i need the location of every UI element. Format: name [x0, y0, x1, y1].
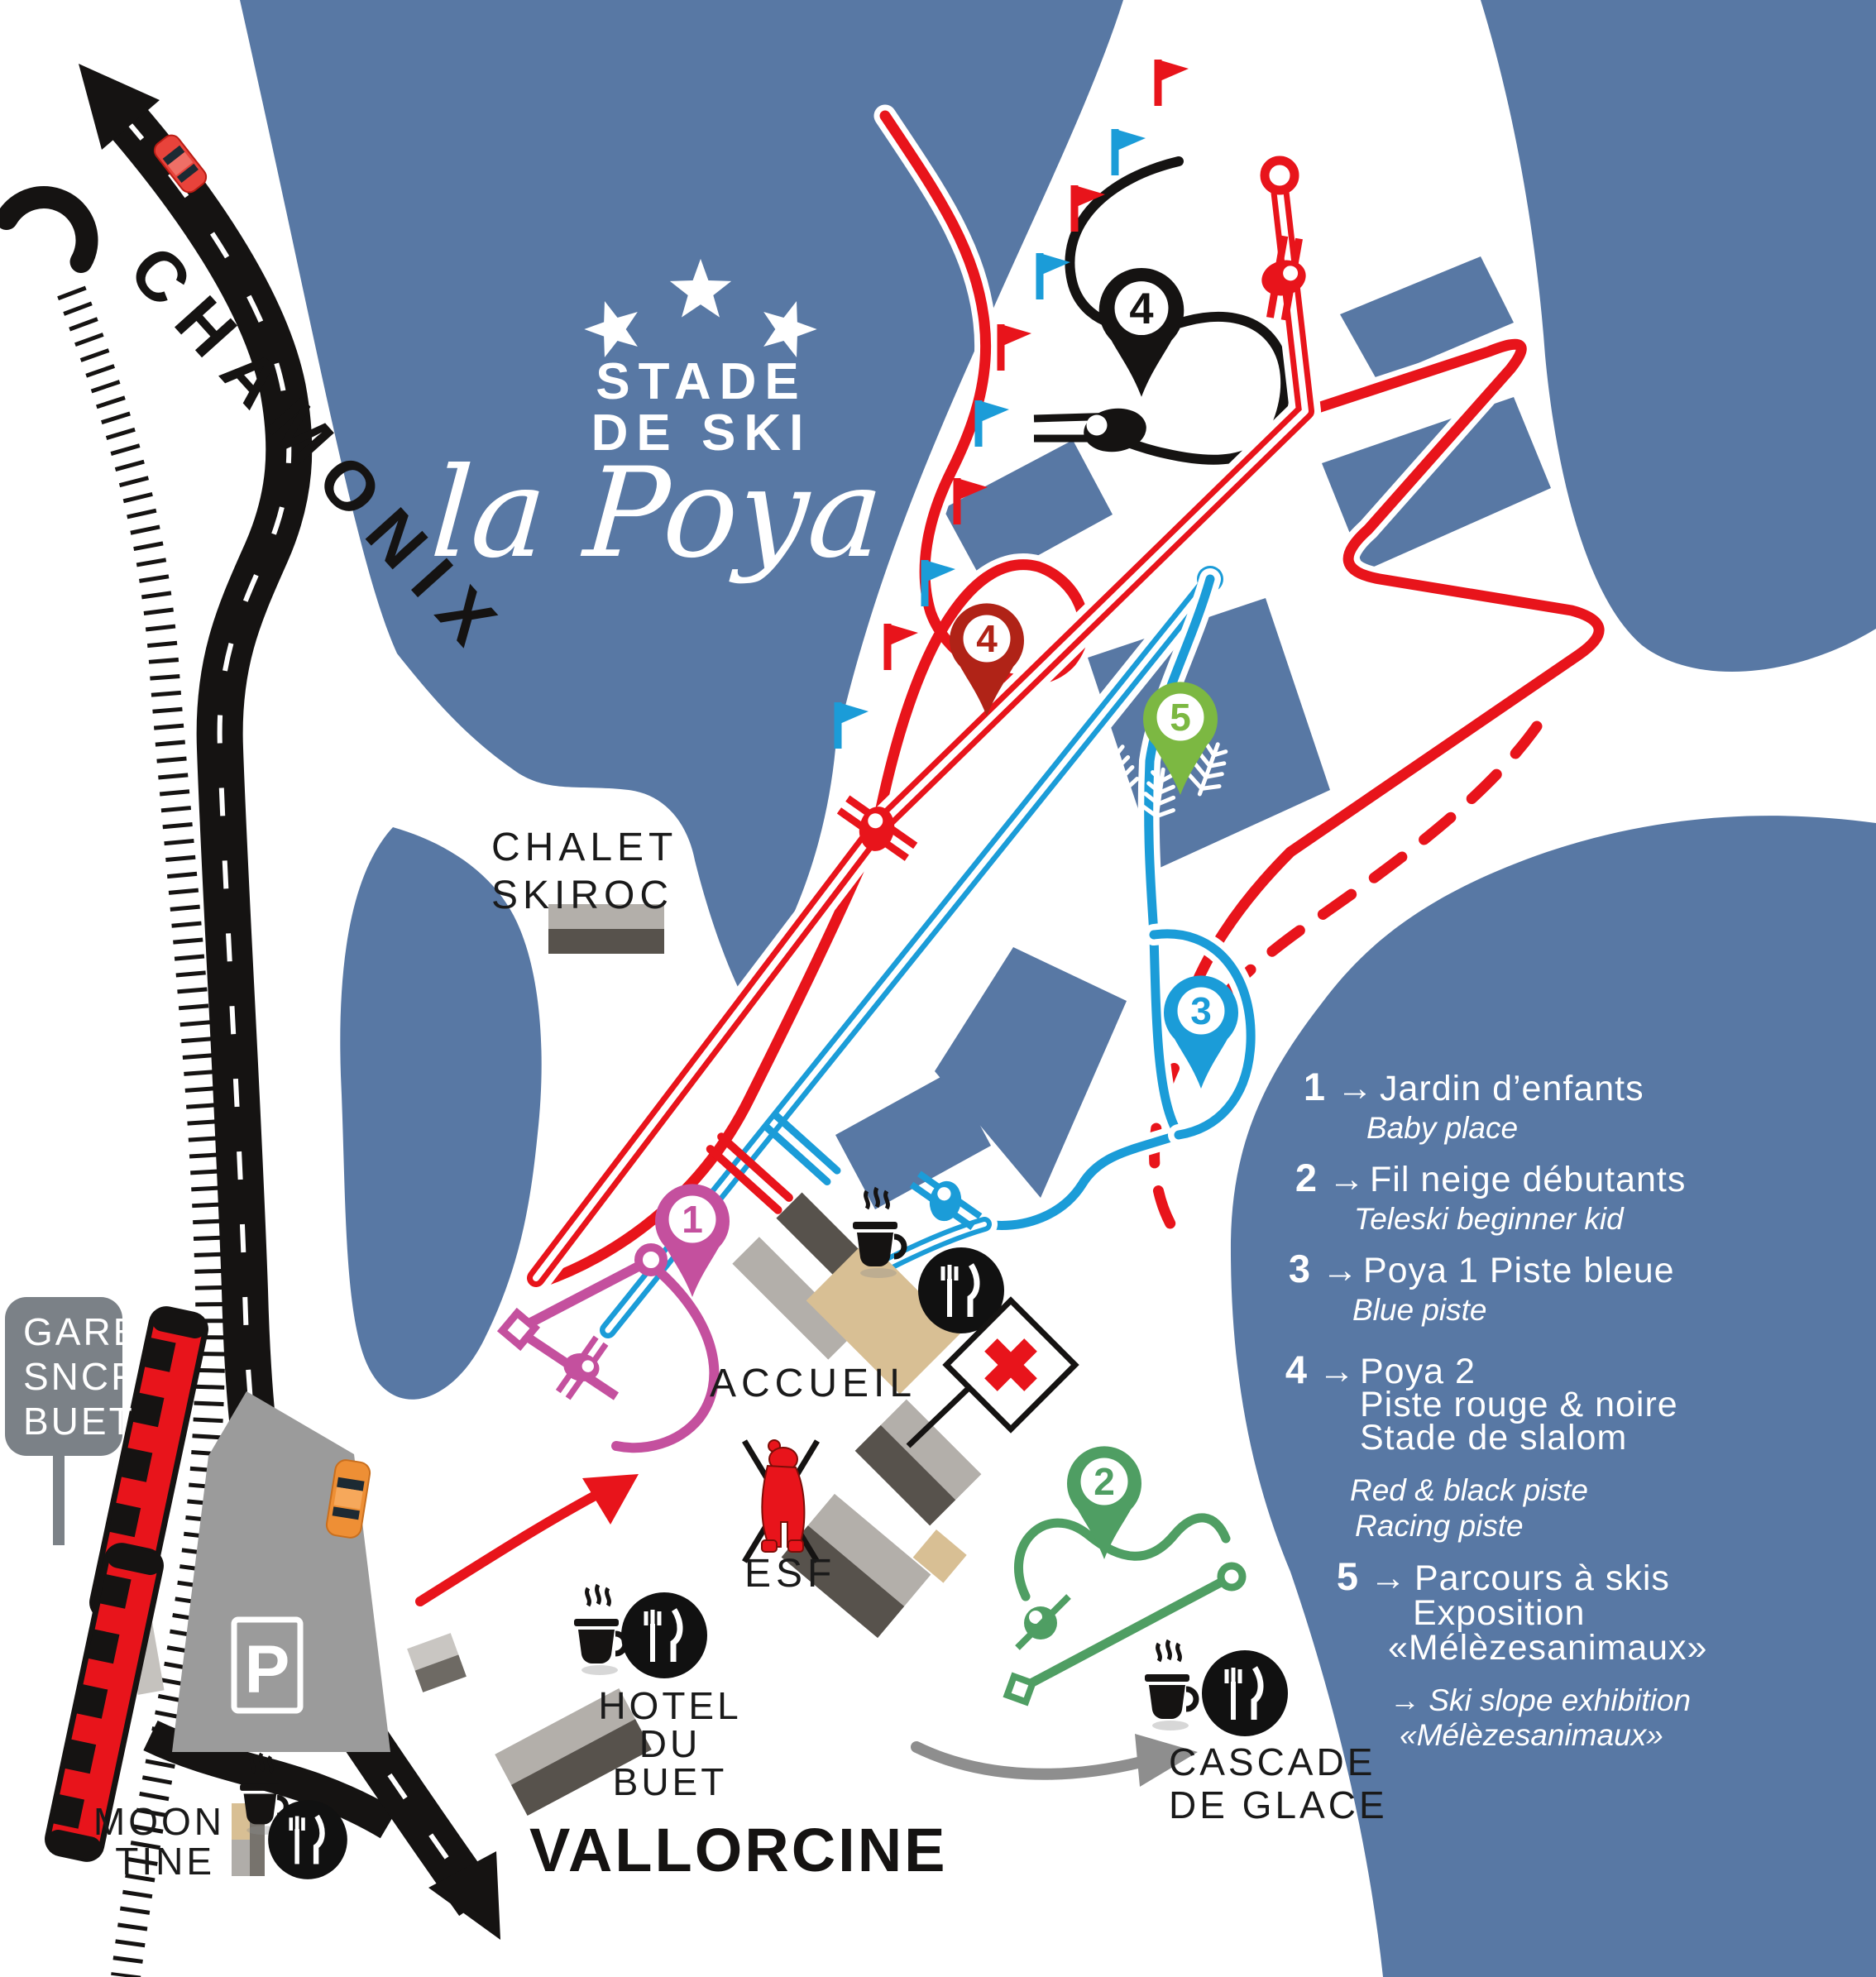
- legend-1-fr: Jardin d’enfants: [1380, 1069, 1644, 1108]
- legend-4-number: 4: [1285, 1348, 1307, 1391]
- vallorcine-label: VALLORCINE: [529, 1816, 948, 1884]
- legend-3-fr: Poya 1 Piste bleue: [1363, 1251, 1675, 1290]
- restaurant-icon: [1202, 1650, 1288, 1736]
- restaurant-icon: [621, 1592, 707, 1678]
- accueil-label: ACCUEIL: [710, 1362, 916, 1405]
- legend-4-en2: Racing piste: [1355, 1509, 1524, 1543]
- legend-5-arrow: →: [1370, 1558, 1406, 1598]
- gare-line2: SNCF: [23, 1355, 136, 1398]
- legend-2-number: 2: [1295, 1156, 1317, 1199]
- legend-2-arrow: →: [1328, 1159, 1365, 1199]
- legend-1-en: Baby place: [1366, 1111, 1518, 1145]
- pin-number: 3: [1190, 989, 1212, 1032]
- ski-map: P: [0, 0, 1876, 1977]
- pin-number: 4: [1129, 285, 1153, 333]
- title-line1: STADE: [596, 353, 807, 410]
- esf-label: ESF: [744, 1552, 836, 1596]
- legend-5-fr2: Exposition: [1413, 1593, 1585, 1633]
- pin-number: 5: [1170, 696, 1191, 739]
- legend-2-en: Teleski beginner kid: [1354, 1202, 1625, 1236]
- legend-3-en: Blue piste: [1352, 1293, 1487, 1327]
- legend-2-fr: Fil neige débutants: [1370, 1160, 1686, 1199]
- title-script: la Poya: [427, 442, 888, 586]
- moontine-line1: MOON: [93, 1800, 225, 1843]
- legend-3-number: 3: [1289, 1247, 1310, 1290]
- legend-3-arrow: →: [1322, 1250, 1358, 1290]
- pin-number: 2: [1094, 1460, 1115, 1503]
- legend-5-en2: «Mélèzesanimaux»: [1400, 1718, 1663, 1752]
- legend-1-number: 1: [1304, 1065, 1325, 1108]
- parking-label: P: [245, 1632, 290, 1707]
- legend-5-en1: → Ski slope exhibition: [1390, 1683, 1691, 1717]
- gare-line3: BUET: [23, 1400, 135, 1443]
- legend-5-fr1: Parcours à skis: [1414, 1558, 1670, 1598]
- hotel-line3: BUET: [613, 1760, 728, 1803]
- cascade-line2: DE GLACE: [1169, 1783, 1388, 1826]
- hotel-line2: DU: [639, 1722, 701, 1765]
- legend-1-arrow: →: [1337, 1068, 1373, 1108]
- chalet-skiroc-line1: CHALET: [491, 826, 677, 869]
- pin-number: 1: [682, 1198, 703, 1241]
- hotel-line1: HOTEL: [598, 1684, 741, 1727]
- restaurant-icon: [268, 1800, 347, 1879]
- cascade-line1: CASCADE: [1169, 1740, 1376, 1783]
- gare-line1: GARE: [23, 1310, 141, 1353]
- legend-4-en1: Red & black piste: [1350, 1473, 1588, 1507]
- legend-4-fr3: Stade de slalom: [1360, 1418, 1627, 1458]
- pin-number: 4: [976, 617, 998, 660]
- legend-4-arrow: →: [1318, 1351, 1355, 1391]
- moontine-line2: TINE: [115, 1840, 215, 1883]
- lift-red-terminus: [1265, 160, 1295, 190]
- legend-5-number: 5: [1337, 1554, 1358, 1598]
- legend-5-fr3: «Mélèzesanimaux»: [1388, 1628, 1707, 1668]
- chalet-skiroc-line2: SKIROC: [491, 874, 673, 917]
